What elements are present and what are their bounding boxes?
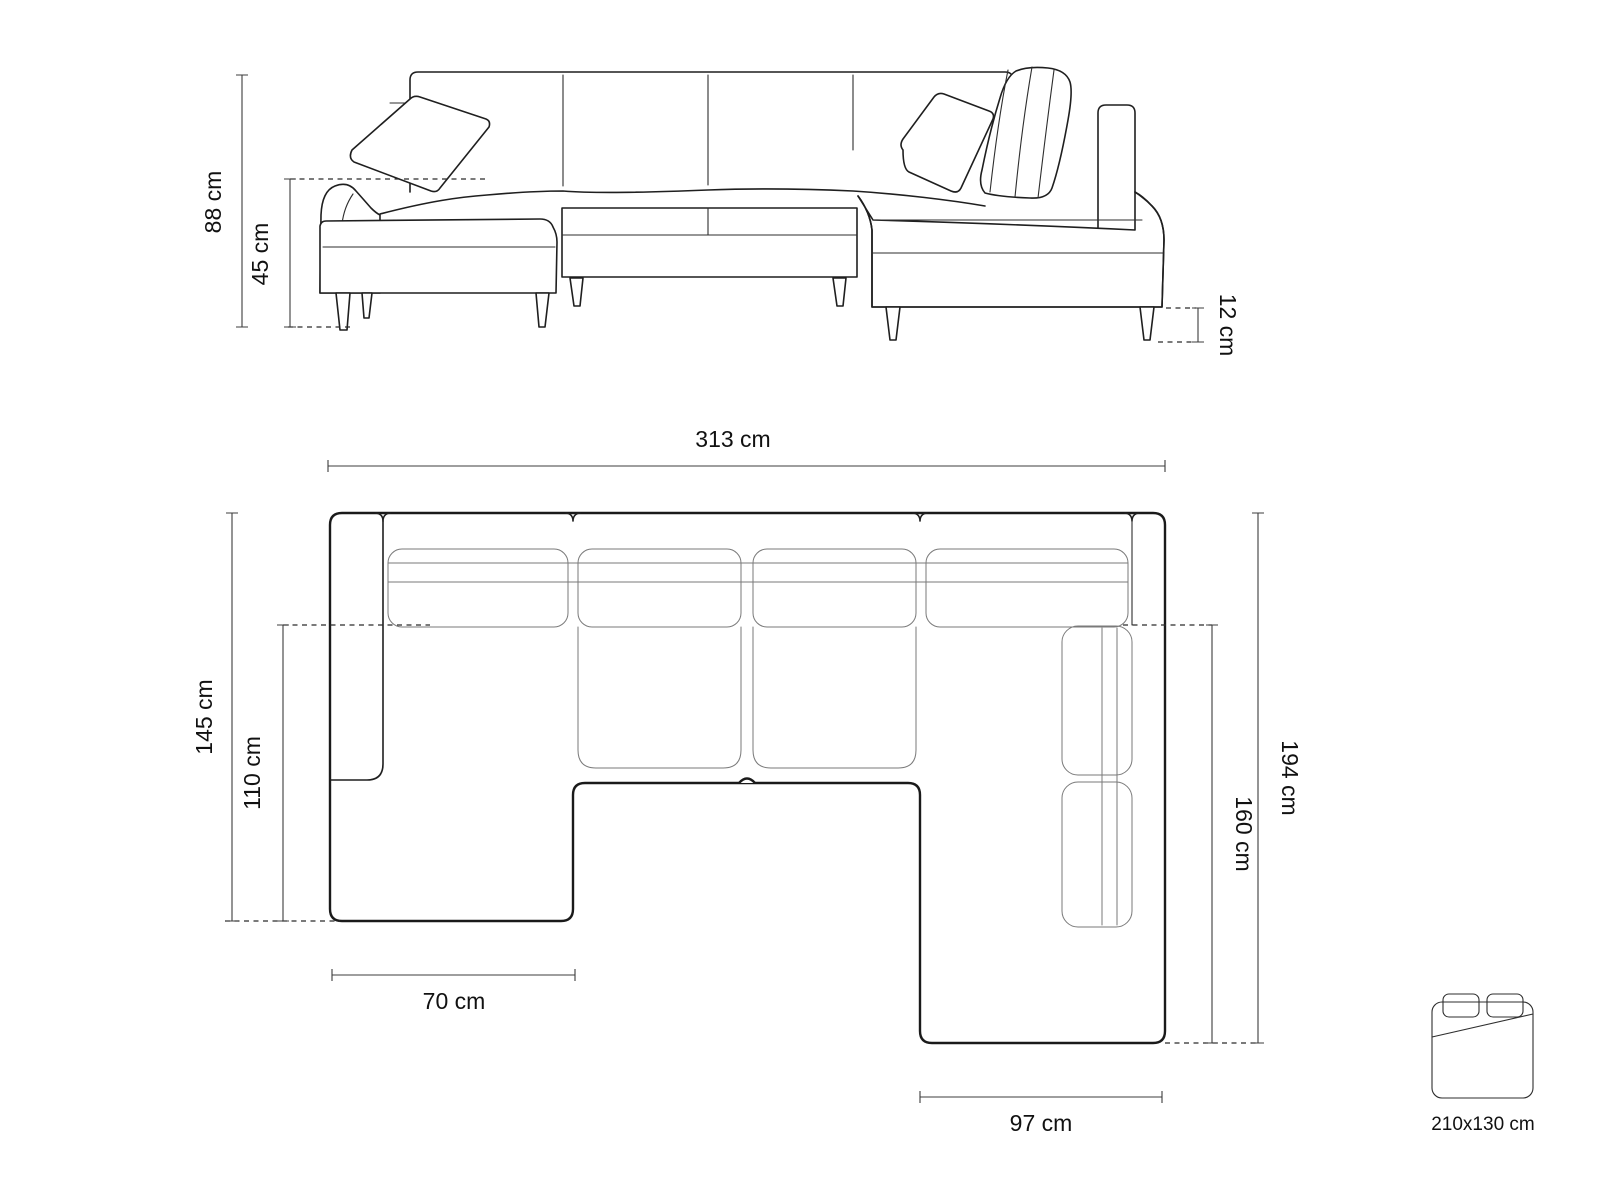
dim-line-left-chaise-width [332, 969, 575, 981]
dim-line-right-chaise-depth [1206, 625, 1218, 1043]
total-height-label: 88 cm [200, 171, 226, 234]
bench-leg-right [833, 278, 846, 306]
bed-pillow-right [1487, 994, 1523, 1017]
left-chaise-width-label: 70 cm [423, 988, 486, 1014]
left-chaise-leg-front [336, 293, 350, 330]
bed-icon [1432, 994, 1533, 1098]
front-elevation-drawing [288, 67, 1196, 342]
left-chaise-leg-back [362, 293, 372, 318]
top-plan-drawing [225, 513, 1258, 1043]
middle-bench [562, 208, 857, 277]
dim-line-right-chaise-width [920, 1091, 1162, 1103]
diagram-svg: 88 cm 45 cm 12 cm [0, 0, 1600, 1200]
left-chaise-leg-right [536, 293, 549, 327]
sofa-dimensions-diagram: 88 cm 45 cm 12 cm [0, 0, 1600, 1200]
left-chaise-front [320, 219, 557, 293]
right-chaise-depth-label: 160 cm [1231, 796, 1257, 871]
dim-line-leg-height [1192, 308, 1204, 342]
total-width-label: 313 cm [695, 426, 770, 452]
right-chaise-width-label: 97 cm [1010, 1110, 1073, 1136]
sleeping-area-size-label: 210x130 cm [1431, 1114, 1535, 1135]
right-depth-label: 194 cm [1277, 740, 1303, 815]
dim-line-total-height [236, 75, 248, 327]
seat-height-label: 45 cm [247, 223, 273, 286]
left-depth-label: 145 cm [191, 679, 217, 754]
right-chaise-leg-left [886, 307, 900, 340]
dim-line-left-chaise-depth [277, 625, 289, 921]
sleeping-area: 210x130 cm [1431, 994, 1535, 1135]
dim-line-left-depth [226, 513, 238, 921]
dim-line-right-depth [1252, 513, 1264, 1043]
leg-height-label: 12 cm [1215, 294, 1241, 357]
bed-pillow-left [1443, 994, 1479, 1017]
dim-line-total-width [328, 460, 1165, 472]
bench-leg-left [570, 278, 583, 306]
dim-line-seat-height [284, 179, 296, 327]
right-chaise-leg-right [1140, 307, 1154, 340]
bed-blanket-fold [1432, 1014, 1533, 1037]
left-chaise-depth-label: 110 cm [239, 736, 265, 810]
